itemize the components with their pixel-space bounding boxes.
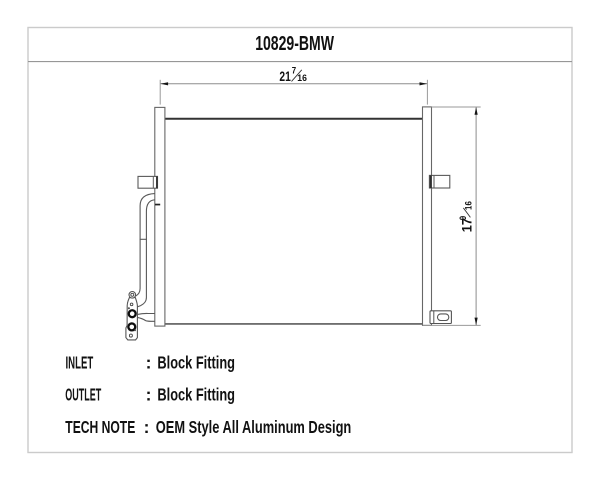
svg-text:INLET: INLET: [66, 353, 94, 373]
svg-text:16: 16: [297, 73, 307, 83]
svg-text:7: 7: [292, 65, 296, 75]
svg-text:Block Fitting: Block Fitting: [157, 385, 235, 405]
svg-text:9: 9: [458, 216, 468, 220]
svg-text:16: 16: [463, 201, 473, 210]
svg-text::: :: [144, 417, 150, 437]
svg-text:OUTLET: OUTLET: [65, 385, 101, 405]
svg-text:21: 21: [279, 69, 291, 84]
svg-text:OEM Style All Aluminum Design: OEM Style All Aluminum Design: [156, 417, 351, 437]
svg-text:10829-BMW: 10829-BMW: [255, 33, 334, 55]
svg-text::: :: [146, 353, 152, 373]
svg-text::: :: [146, 385, 152, 405]
svg-text:Block Fitting: Block Fitting: [157, 353, 235, 373]
svg-text:TECH NOTE: TECH NOTE: [65, 417, 135, 437]
